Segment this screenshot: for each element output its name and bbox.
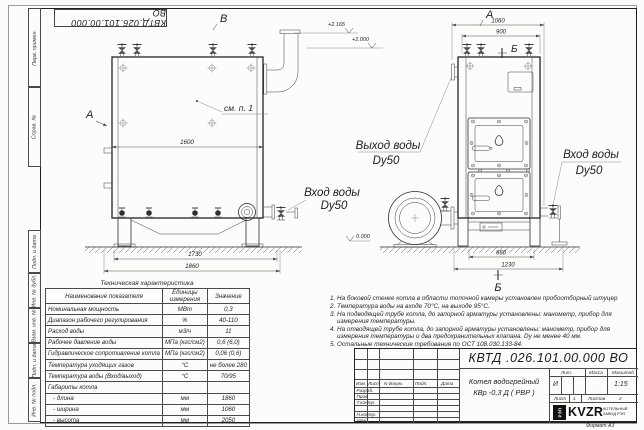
note-item: 3. На подводящей трубе котла, до запорно… [330,311,637,326]
margin-label: Инв. № подл. [32,383,38,416]
spec-row: Температура уходящих газов°Сне более 280 [46,359,250,370]
margin-column-vzam-inv: Взам. инв. № [28,308,41,343]
note-item: 4. На отводящей трубе котла, до запорной… [330,326,637,341]
kvzr-logo: KVZR [568,405,603,419]
outlet-label: Выход воды [356,140,421,152]
spec-row: Габариты котла [46,382,250,393]
dim-660: 660 [496,251,507,257]
section-b-bottom: Б [494,270,503,294]
front-view [452,44,568,247]
spec-col-value: Значение [207,289,249,304]
kvzr-company-name: КОТЕЛЬНЫЙ ЗАВОД РЭП [603,407,627,417]
view-label-v: В [220,13,227,25]
margin-column-podp-data-2: Подп. и дата [28,343,41,378]
spec-row: Гидравлическое сопротивление котлаМПа (к… [46,348,250,359]
level-0000: 0.000 [356,234,371,240]
tb-product-line1: Котел водогрейный [459,377,549,386]
tb-header-list: Лист [368,381,380,386]
spec-row: Расход водым3/ч11 [46,326,250,337]
dim-900: 900 [496,30,507,36]
callout-see-p1: см. п. 1 [224,103,253,113]
tb-sheets-value: 2 [619,396,622,401]
dim-1860: 1860 [185,263,199,270]
spec-row: Диапазон рабочего регулирования%40-110 [46,315,250,326]
kvzr-logo-mark: РЭП [553,405,566,420]
spec-table-title: Техническая характеристика [45,280,249,287]
section-label-b-top: Б [511,44,518,55]
spec-row: Номинальная мощностьМВт0,3 [46,304,250,315]
tb-scale-label: Масштаб [612,370,634,375]
lower-door [468,169,530,218]
level-2000: +2.000 [352,37,370,43]
margin-label: Взам. инв. № [32,309,38,342]
dim-1230: 1230 [501,263,515,269]
tb-sheet-value: 1 [573,396,576,401]
margin-column-inv-podl: Инв. № подл. [28,378,41,422]
inlet-water-label-side: Вход воды Dy50 [288,187,360,212]
tb-lit-value: И [553,381,558,388]
inlet-front-dn: Dy50 [576,165,603,177]
outlet-dn: Dy50 [373,155,400,167]
spec-row: Температура воды (Вход/выход)°С70/95 [46,371,250,382]
spec-col-units: Единицы измерения [162,289,207,304]
spec-row: - ширинамм1060 [46,404,250,415]
kvzr-company-line2: ЗАВОД РЭП [603,412,627,417]
inlet-side-dn: Dy50 [321,200,348,212]
note-item: 1. На боковой стенке котла в области топ… [330,295,637,302]
tb-mass-label: Масса [589,370,603,375]
tb-role-prov: Пров. [357,394,369,399]
notes-list: 1. На боковой стенке котла в области топ… [330,295,637,349]
title-block: Изм. Лист N докум. Подп. Дата Разраб. Пр… [354,348,637,422]
format-note: Формат А3 [586,423,614,429]
level-2165: +2.165 [328,22,346,28]
inlet-water-label-front: Вход воды Dy50 [553,149,621,205]
view-label-a-side: А [85,109,93,121]
inlet-side-label: Вход воды [304,187,360,199]
spec-row: - длинамм1860 [46,393,250,404]
tb-product-line2: КВр -0,3 Д ( РВР ) [459,388,549,397]
inlet-front-label: Вход воды [563,149,619,161]
technical-drawing: 1600 1730 1860 В А см. п. 1 +2.165 +2.00… [40,8,637,300]
tb-lit-label: Лит. [561,370,572,375]
dim-1730: 1730 [188,251,202,258]
tb-header-data: Дата [441,381,453,386]
section-label-b-bottom: Б [494,282,501,294]
spec-header-row: Наименование показателя Единицы измерени… [46,289,250,304]
margin-label: Инв. № дубл. [32,274,38,307]
margin-label: Подп. и дата [32,235,38,269]
margin-label: Подп. и дата [32,344,38,378]
dim-1600: 1600 [180,139,194,146]
outlet-water-label: Выход воды Dy50 [356,78,451,167]
view-label-a-front: А [485,9,493,21]
tb-header-ndokum: N докум. [384,381,403,386]
note-item: 2. Температура воды на входе 70°С, на вы… [330,303,637,310]
dim-1060: 1060 [491,19,505,25]
margin-label: Справ. № [32,115,38,140]
section-b-top: Б [498,44,518,58]
drawing-sheet: Перв. примен. Справ. № Подп. и дата Инв.… [0,0,644,430]
spec-row: Рабочее давление водыМПа (кгс/см2)0,6 (6… [46,337,250,348]
tb-sheets-label: Листов [588,396,605,401]
ground-hatch [380,247,580,253]
upper-door [468,118,530,169]
spec-table: Техническая характеристика Наименование … [45,280,249,427]
side-chimney-pipe [264,30,300,94]
spec-row: - высотамм2050 [46,415,250,426]
tb-role-utv: Утв. [357,418,368,423]
tb-role-nkontr: Н.контр. [357,412,377,417]
tb-doc-number: КВТД .026.101.00.000 ВО [459,349,638,368]
tb-header-podp: Подп. [415,381,427,386]
tb-header-izm: Изм. [356,381,366,386]
kvzr-logo-mark-text: РЭП [557,408,562,418]
spec-col-name: Наименование показателя [46,289,163,304]
tb-role-tkontr: Т.контр. [357,400,376,405]
tb-scale-value: 1:15 [614,381,628,388]
tb-sheet-label: Лист [554,396,566,401]
margin-label: Перв. примен. [32,30,38,66]
tb-product-name: Котел водогрейный КВр -0,3 Д ( РВР ) [459,368,549,423]
tb-role-razrab: Разраб. [357,388,374,393]
